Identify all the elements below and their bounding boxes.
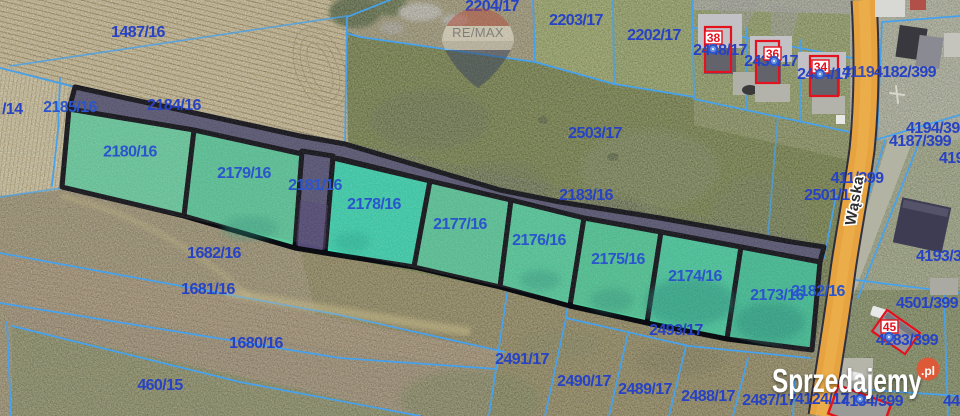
svg-text:4187/399: 4187/399: [889, 133, 952, 150]
svg-text:2489/17: 2489/17: [618, 381, 672, 398]
svg-text:4119: 4119: [842, 64, 875, 81]
svg-text:2174/16: 2174/16: [668, 268, 722, 285]
svg-text:2490/17: 2490/17: [557, 373, 611, 390]
svg-text:2182/16: 2182/16: [791, 283, 845, 300]
svg-text:2181/16: 2181/16: [288, 177, 342, 194]
svg-text:RE/MAX: RE/MAX: [452, 25, 504, 40]
svg-text:38: 38: [707, 31, 721, 45]
svg-text:1487/16: 1487/16: [111, 24, 165, 41]
svg-text:4501/399: 4501/399: [896, 295, 959, 312]
svg-text:4193: 4193: [939, 150, 960, 167]
svg-text:.pl: .pl: [921, 364, 935, 378]
svg-text:4193/3: 4193/3: [916, 248, 960, 265]
svg-text:44/: 44/: [943, 393, 960, 410]
svg-text:/14: /14: [2, 101, 23, 118]
svg-text:2184/16: 2184/16: [147, 97, 201, 114]
svg-text:2202/17: 2202/17: [627, 27, 681, 44]
svg-text:2491/17: 2491/17: [495, 351, 549, 368]
svg-text:2175/16: 2175/16: [591, 251, 645, 268]
svg-text:2488/17: 2488/17: [681, 388, 735, 405]
svg-text:1681/16: 1681/16: [181, 281, 235, 298]
svg-text:1682/16: 1682/16: [187, 245, 241, 262]
svg-text:Sprzedajemy: Sprzedajemy: [772, 362, 922, 399]
svg-text:4182/399: 4182/399: [874, 64, 937, 81]
svg-text:2185/16: 2185/16: [43, 99, 97, 116]
svg-text:460/15: 460/15: [137, 377, 183, 394]
svg-text:2179/16: 2179/16: [217, 165, 271, 182]
svg-text:2503/17: 2503/17: [568, 125, 622, 142]
svg-text:2180/16: 2180/16: [103, 144, 157, 161]
svg-text:2178/16: 2178/16: [347, 196, 401, 213]
svg-text:2177/16: 2177/16: [433, 216, 487, 233]
svg-text:2493/17: 2493/17: [649, 322, 703, 339]
svg-text:2183/16: 2183/16: [559, 187, 613, 204]
svg-text:2203/17: 2203/17: [549, 12, 603, 29]
svg-text:2176/16: 2176/16: [512, 232, 566, 249]
svg-text:1680/16: 1680/16: [229, 335, 283, 352]
